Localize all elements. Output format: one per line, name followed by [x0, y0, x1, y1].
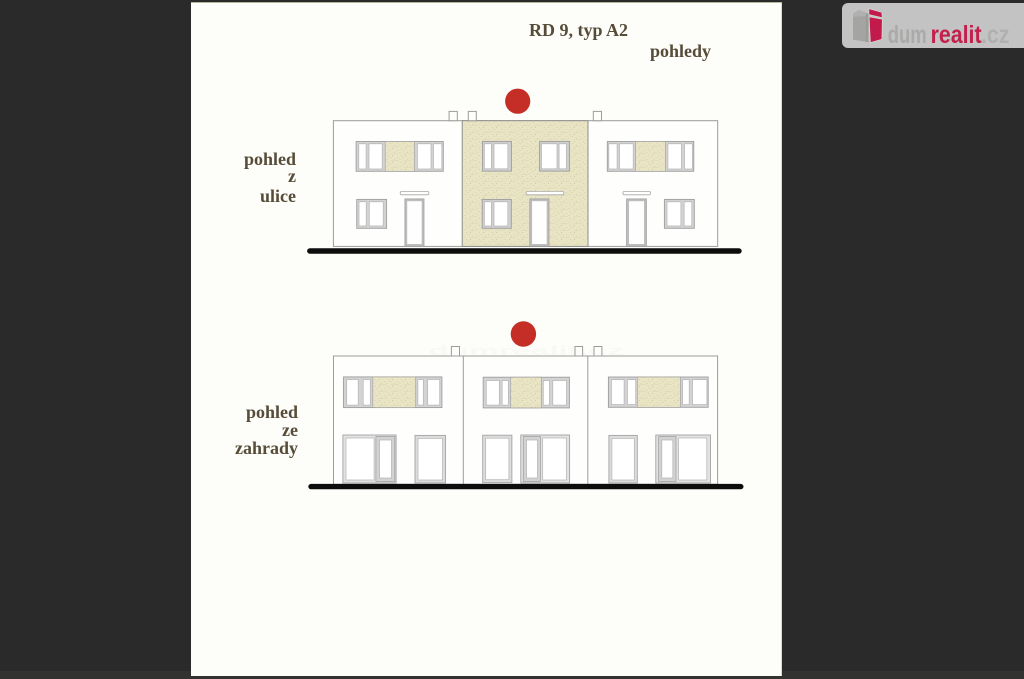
svg-text:dum: dum	[888, 21, 927, 48]
svg-text:.cz: .cz	[981, 21, 1010, 48]
svg-text:realit: realit	[931, 21, 983, 48]
